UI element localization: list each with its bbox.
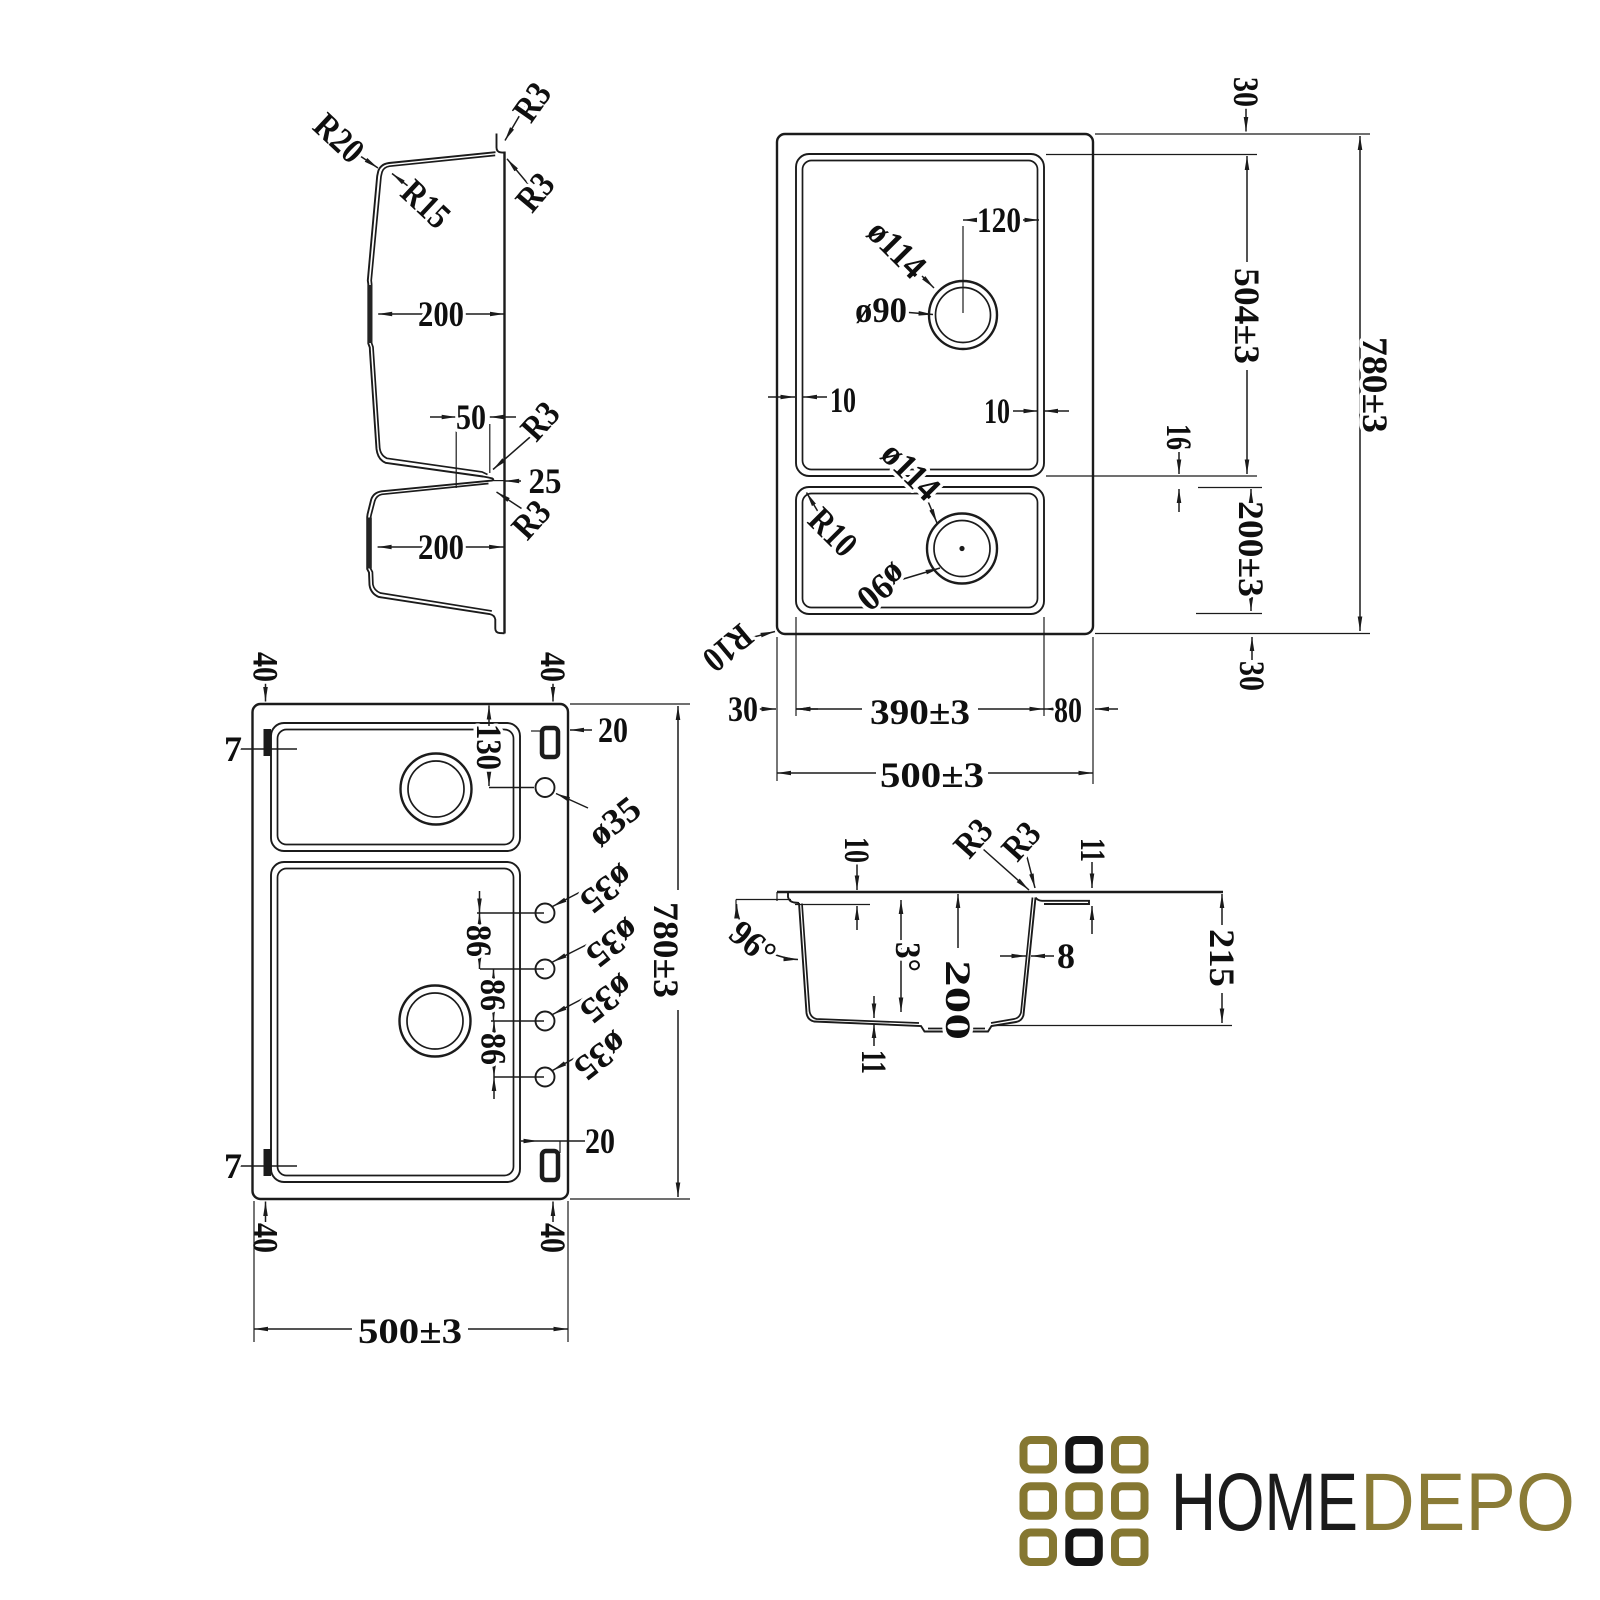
svg-text:40: 40 — [533, 652, 573, 682]
svg-text:11: 11 — [854, 1050, 894, 1074]
svg-text:25: 25 — [529, 461, 562, 501]
svg-text:30: 30 — [728, 689, 758, 729]
svg-text:HOME: HOME — [1171, 1457, 1358, 1548]
svg-text:200: 200 — [418, 294, 464, 334]
svg-text:390±3: 390±3 — [870, 692, 970, 732]
svg-text:ø90: ø90 — [855, 290, 907, 330]
svg-text:7: 7 — [224, 729, 242, 769]
svg-text:30: 30 — [1232, 661, 1272, 691]
svg-text:80: 80 — [1054, 690, 1082, 730]
svg-text:3°: 3° — [888, 942, 928, 972]
svg-text:10: 10 — [984, 391, 1010, 431]
svg-text:10: 10 — [837, 837, 877, 863]
svg-text:10: 10 — [830, 380, 856, 420]
svg-text:500±3: 500±3 — [880, 755, 984, 795]
svg-text:20: 20 — [585, 1121, 615, 1161]
svg-text:40: 40 — [533, 1223, 573, 1253]
svg-text:130: 130 — [469, 724, 509, 770]
svg-text:86: 86 — [459, 925, 499, 957]
svg-text:200: 200 — [418, 527, 464, 567]
svg-text:504±3: 504±3 — [1227, 268, 1267, 364]
svg-text:20: 20 — [598, 710, 628, 750]
svg-text:200: 200 — [938, 960, 978, 1040]
svg-text:86: 86 — [473, 979, 513, 1011]
svg-text:11: 11 — [1073, 838, 1113, 862]
svg-text:16: 16 — [1159, 424, 1199, 450]
svg-text:40: 40 — [246, 1223, 286, 1253]
svg-text:200±3: 200±3 — [1231, 501, 1271, 597]
svg-text:120: 120 — [977, 200, 1021, 240]
svg-text:780±3: 780±3 — [1355, 337, 1395, 433]
svg-text:7: 7 — [224, 1146, 242, 1186]
svg-text:30: 30 — [1226, 77, 1266, 107]
svg-text:86: 86 — [474, 1033, 514, 1065]
svg-text:500±3: 500±3 — [358, 1311, 462, 1351]
svg-text:50: 50 — [456, 397, 486, 437]
svg-text:8: 8 — [1057, 936, 1075, 976]
svg-text:DEPO: DEPO — [1360, 1457, 1575, 1548]
svg-text:780±3: 780±3 — [646, 902, 686, 998]
svg-text:215: 215 — [1202, 929, 1242, 987]
svg-text:40: 40 — [246, 652, 286, 682]
